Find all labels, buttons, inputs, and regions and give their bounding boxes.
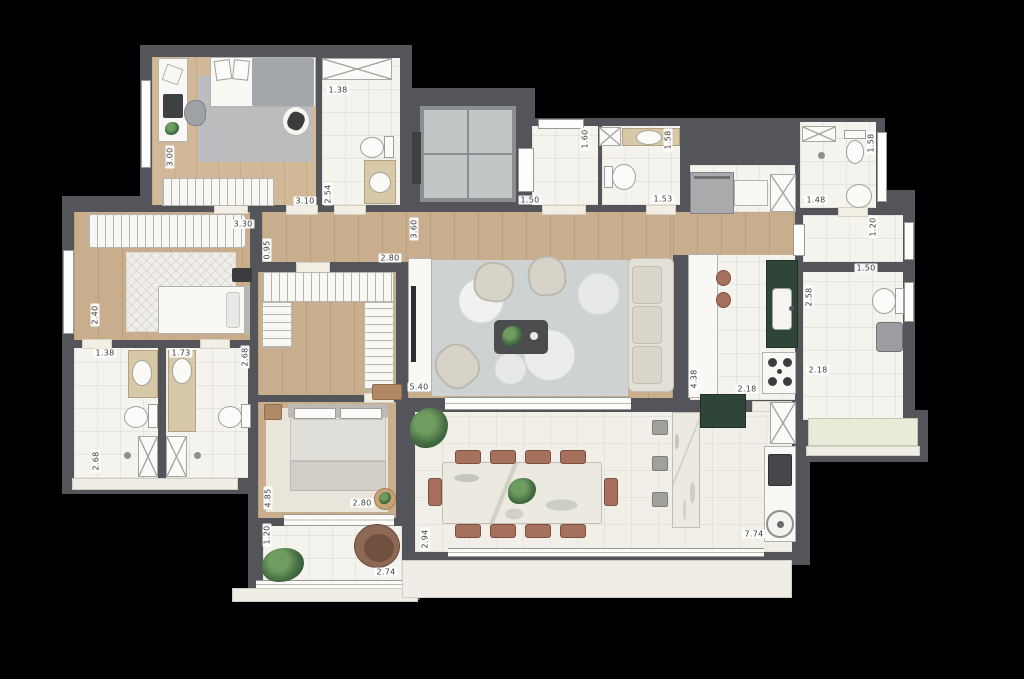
dimension-label: 4.85 [264,486,273,509]
dimension-label: 2.40 [91,303,100,326]
dimension-label: 1.38 [326,86,349,95]
dimension-label: 3.30 [231,220,254,229]
dimension-label: 2.68 [241,345,250,368]
dimension-label: 4.38 [690,367,699,390]
dimension-layer: 3.003.101.382.543.300.952.803.601.601.50… [0,0,1024,679]
dimension-label: 1.50 [518,196,541,205]
dimension-label: 2.68 [92,449,101,472]
dimension-label: 3.10 [293,197,316,206]
dimension-label: 2.18 [735,385,758,394]
dimension-label: 1.73 [169,349,192,358]
dimension-label: 2.54 [324,182,333,205]
dimension-label: 7.74 [742,530,765,539]
dimension-label: 5.40 [407,383,430,392]
dimension-label: 1.38 [93,349,116,358]
dimension-label: 1.58 [867,131,876,154]
dimension-label: 1.50 [854,264,877,273]
dimension-label: 1.58 [664,128,673,151]
dimension-label: 2.18 [806,366,829,375]
dimension-label: 3.60 [410,217,419,240]
dimension-label: 0.95 [263,238,272,261]
floor-plan: 3.003.101.382.543.300.952.803.601.601.50… [0,0,1024,679]
dimension-label: 3.00 [166,145,175,168]
dimension-label: 1.20 [869,215,878,238]
dimension-label: 2.94 [421,527,430,550]
dimension-label: 2.58 [805,285,814,308]
dimension-label: 2.74 [374,568,397,577]
dimension-label: 1.53 [651,195,674,204]
dimension-label: 2.80 [378,254,401,263]
dimension-label: 1.48 [804,196,827,205]
dimension-label: 1.20 [263,523,272,546]
dimension-label: 1.60 [581,127,590,150]
dimension-label: 2.80 [350,499,373,508]
